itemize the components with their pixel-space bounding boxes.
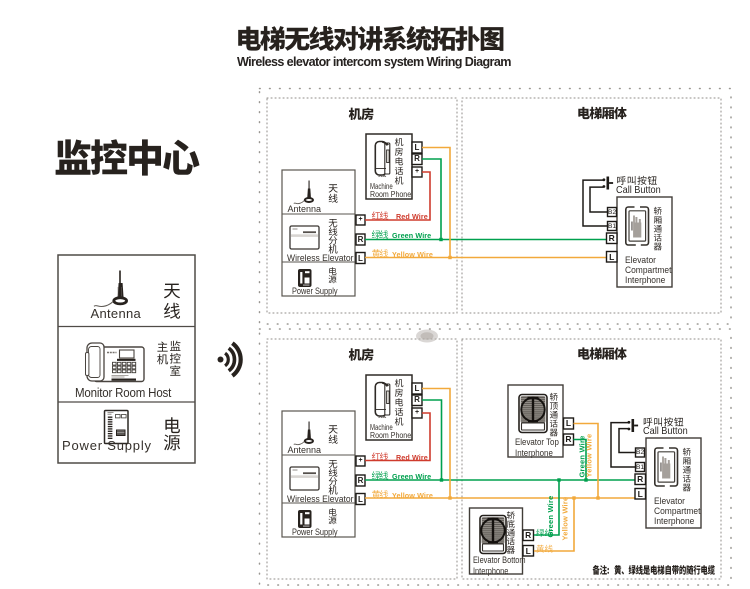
svg-text:Yellow Wire: Yellow Wire	[585, 434, 594, 478]
svg-text:Green Wire: Green Wire	[546, 496, 555, 538]
svg-text:Yellow Wire: Yellow Wire	[560, 497, 569, 541]
